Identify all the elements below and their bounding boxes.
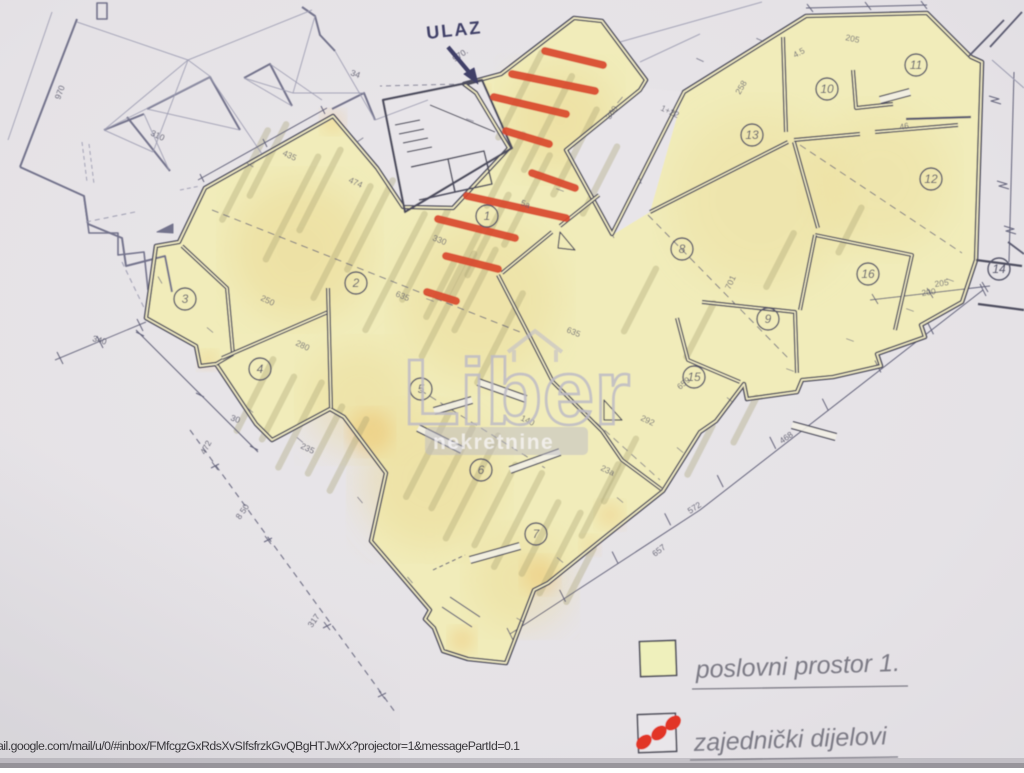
- svg-text:205: 205: [934, 277, 950, 289]
- svg-text:10: 10: [820, 82, 834, 96]
- svg-text:nekretnine: nekretnine: [433, 431, 554, 454]
- svg-text:13: 13: [745, 128, 759, 142]
- svg-text:12: 12: [924, 172, 938, 186]
- svg-text:3: 3: [182, 292, 189, 306]
- svg-text:6: 6: [478, 463, 485, 477]
- svg-text:14: 14: [992, 262, 1006, 276]
- svg-text:2: 2: [352, 276, 360, 290]
- svg-text:46: 46: [899, 120, 910, 132]
- svg-text:200: 200: [921, 286, 937, 298]
- svg-text:8: 8: [679, 242, 686, 256]
- svg-text:11: 11: [910, 58, 922, 72]
- svg-text:1: 1: [484, 209, 491, 223]
- svg-text:4: 4: [257, 362, 264, 376]
- svg-text:9: 9: [765, 312, 772, 326]
- svg-text:16: 16: [861, 267, 875, 281]
- svg-text:ail.google.com/mail/u/0/#inbox: ail.google.com/mail/u/0/#inbox/FMfcgzGxR…: [0, 739, 520, 753]
